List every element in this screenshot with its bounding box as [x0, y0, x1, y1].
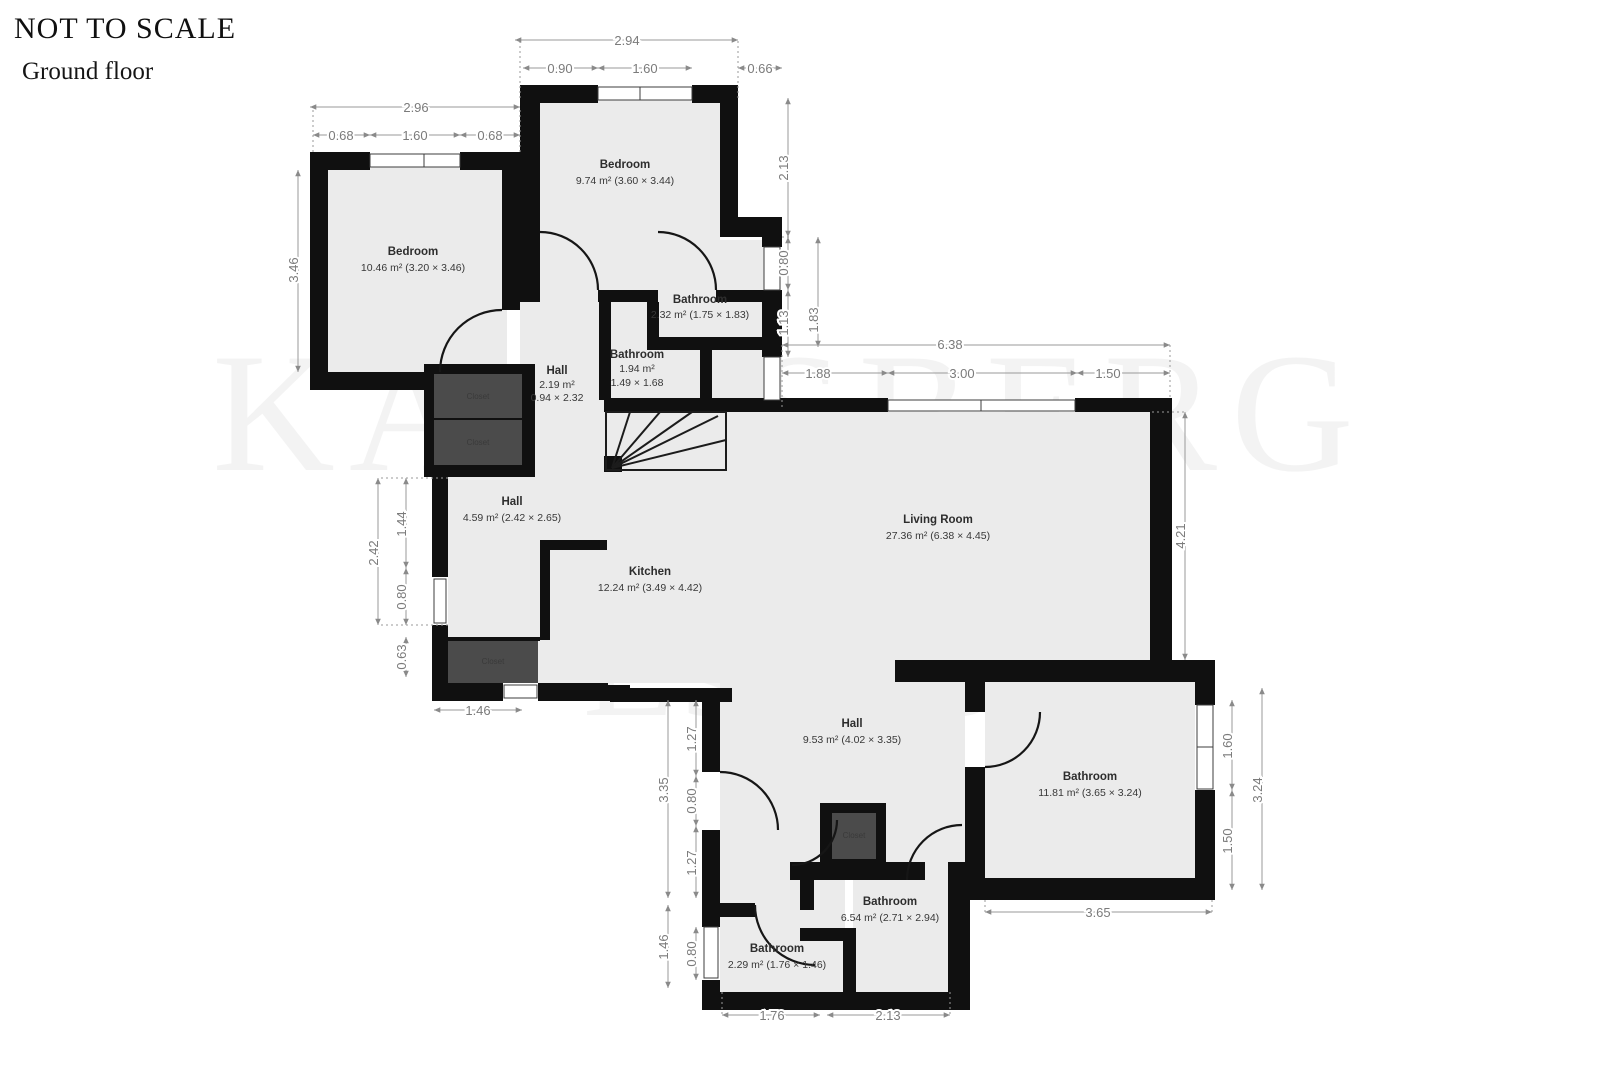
room-name: Hall — [841, 718, 862, 730]
not-to-scale-label: NOT TO SCALE — [14, 12, 236, 46]
room-area: 27.36 m² (6.38 × 4.45) — [886, 530, 990, 542]
dim-label: 3.65 — [1085, 905, 1110, 920]
room-area: 2.32 m² (1.75 × 1.83) — [651, 309, 749, 321]
dim-label: 0.80 — [776, 250, 791, 275]
dim-label: 1.60 — [402, 128, 427, 143]
dim-label: 1.46 — [465, 703, 490, 718]
dim-label: 3.24 — [1250, 777, 1265, 802]
room-area: 9.53 m² (4.02 × 3.35) — [803, 734, 901, 746]
dim-label: 2.13 — [776, 155, 791, 180]
dim-label: 3.46 — [286, 257, 301, 282]
dim-label: 0.80 — [684, 941, 699, 966]
dim-label: 0.63 — [394, 644, 409, 669]
dim-label: 2.13 — [875, 1008, 900, 1023]
dim-label: 1.60 — [1220, 733, 1235, 758]
closet-label: Closet — [843, 831, 866, 840]
closet-label: Closet — [467, 438, 490, 447]
room-area: 12.24 m² (3.49 × 4.42) — [598, 582, 702, 594]
floor-plan-page: NOT TO SCALE Ground floor KAARSBERG Esta… — [0, 0, 1600, 1080]
room-area: 6.54 m² (2.71 × 2.94) — [841, 912, 939, 924]
dim-label: 1.83 — [806, 307, 821, 332]
room-name: Bathroom — [863, 896, 917, 908]
dim-label: 6.38 — [937, 337, 962, 352]
room-area: 1.94 m² — [619, 363, 655, 375]
dim-label: 0.80 — [394, 584, 409, 609]
room-area: 2.29 m² (1.76 × 1.46) — [728, 959, 826, 971]
dim-label: 1.27 — [684, 726, 699, 751]
plan-header: NOT TO SCALE Ground floor — [14, 12, 236, 86]
dim-label: 0.80 — [684, 788, 699, 813]
room-area2: 0.94 × 2.32 — [531, 392, 584, 404]
dim-label: 2.96 — [403, 100, 428, 115]
room-name: Bathroom — [610, 349, 664, 361]
dim-label: 0.66 — [747, 61, 772, 76]
dim-label: 3.35 — [656, 777, 671, 802]
dim-label: 0.90 — [547, 61, 572, 76]
dim-label: 4.21 — [1173, 523, 1188, 548]
room-area: 2.19 m² — [539, 379, 575, 391]
room-name: Hall — [546, 365, 567, 377]
dim-label: 1.88 — [805, 366, 830, 381]
room-name: Hall — [501, 496, 522, 508]
dim-label: 0.68 — [328, 128, 353, 143]
dim-label: 1.60 — [632, 61, 657, 76]
closet-label: Closet — [467, 392, 490, 401]
dim-label: 1.27 — [684, 850, 699, 875]
dim-label: 1.13 — [776, 310, 791, 335]
room-name: Bathroom — [750, 943, 804, 955]
room-name: Living Room — [903, 514, 973, 526]
dim-label: 1.76 — [759, 1008, 784, 1023]
dim-label: 1.46 — [656, 934, 671, 959]
room-name: Bedroom — [600, 159, 650, 171]
floor-label: Ground floor — [22, 58, 236, 86]
dim-label: 1.50 — [1220, 828, 1235, 853]
closet-label: Closet — [482, 657, 505, 666]
dim-label: 1.44 — [394, 511, 409, 536]
floor-plan-drawing: KAARSBERG Estate — [0, 0, 1600, 1080]
dim-label: 2.94 — [614, 33, 639, 48]
room-area: 4.59 m² (2.42 × 2.65) — [463, 512, 561, 524]
room-name: Bedroom — [388, 246, 438, 258]
dim-label: 1.50 — [1095, 366, 1120, 381]
dim-label: 3.00 — [949, 366, 974, 381]
room-area: 9.74 m² (3.60 × 3.44) — [576, 175, 674, 187]
dim-label: 0.68 — [477, 128, 502, 143]
room-name: Kitchen — [629, 566, 671, 578]
room-area: 10.46 m² (3.20 × 3.46) — [361, 262, 465, 274]
room-area: 11.81 m² (3.65 × 3.24) — [1038, 787, 1141, 799]
room-area2: 1.49 × 1.68 — [611, 377, 664, 389]
room-name: Bathroom — [673, 294, 727, 306]
room-name: Bathroom — [1063, 771, 1117, 783]
dim-label: 2.42 — [366, 540, 381, 565]
